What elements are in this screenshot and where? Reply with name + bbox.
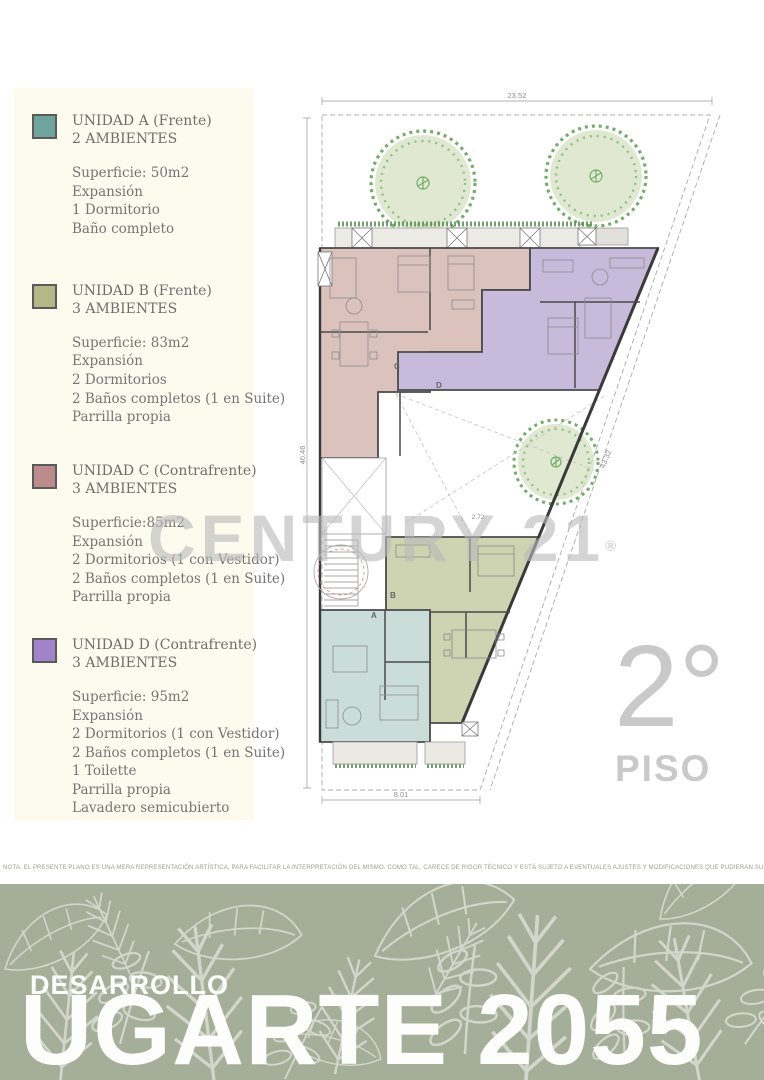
dim-right: 43.32 <box>598 449 613 470</box>
dim-left: 40.46 <box>298 446 307 465</box>
detail-line: 2 Dormitorios (1 con Vestidor) <box>72 726 285 744</box>
unit-a-color-swatch <box>32 114 57 139</box>
unit-b-color-swatch <box>32 284 57 309</box>
unit-c-subtitle: 3 AMBIENTES <box>72 480 285 498</box>
rear-balcony <box>333 742 465 766</box>
disclaimer-note-wrap: NOTA: EL PRESENTE PLANO ES UNA MERA REPR… <box>3 864 763 878</box>
unit-c-details: Superficie:85m2 Expansión 2 Dormitorios … <box>72 515 285 607</box>
unit-d-details: Superficie: 95m2 Expansión 2 Dormitorios… <box>72 689 285 818</box>
tree-icon <box>546 126 646 226</box>
legend-panel: UNIDAD A (Frente) 2 AMBIENTES Superficie… <box>14 88 254 820</box>
detail-line: 1 Dormitorio <box>72 202 212 220</box>
floorplan-sheet: UNIDAD A (Frente) 2 AMBIENTES Superficie… <box>0 0 764 1080</box>
unit-d-title: UNIDAD D (Contrafrente) <box>72 636 285 654</box>
unit-a-details: Superficie: 50m2 Expansión 1 Dormitorio … <box>72 165 212 238</box>
detail-line: Superficie: 83m2 <box>72 335 285 353</box>
detail-line: 2 Baños completos (1 en Suite) <box>72 745 285 763</box>
stair-core <box>314 458 386 606</box>
plan-label-c: C <box>394 362 400 371</box>
disclaimer-note: NOTA: EL PRESENTE PLANO ES UNA MERA REPR… <box>3 864 764 871</box>
detail-line: Parrilla propia <box>72 589 285 607</box>
brand-band: DESARROLLO UGARTE 2055 <box>0 884 764 1080</box>
detail-line: Superficie: 50m2 <box>72 165 212 183</box>
unit-a-area <box>320 610 430 742</box>
detail-line: 2 Baños completos (1 en Suite) <box>72 571 285 589</box>
brand-project-name: UGARTE 2055 <box>20 980 703 1080</box>
detail-line: 2 Baños completos (1 en Suite) <box>72 391 285 409</box>
detail-line: Superficie: 95m2 <box>72 689 285 707</box>
floor-number: 2° <box>614 628 725 744</box>
unit-c-color-swatch <box>32 464 57 489</box>
detail-line: Expansión <box>72 353 285 371</box>
unit-b-subtitle: 3 AMBIENTES <box>72 300 285 318</box>
detail-line: 2 Dormitorios <box>72 372 285 390</box>
detail-line: Parrilla propia <box>72 409 285 427</box>
plan-label-b: B <box>390 591 396 600</box>
plan-label-d: D <box>436 381 442 390</box>
legend-unit-d: UNIDAD D (Contrafrente) 3 AMBIENTES Supe… <box>32 636 248 819</box>
detail-line: Expansión <box>72 184 212 202</box>
unit-a-title: UNIDAD A (Frente) <box>72 112 212 130</box>
detail-line: Lavadero semicubierto <box>72 800 285 818</box>
unit-b-details: Superficie: 83m2 Expansión 2 Dormitorios… <box>72 335 285 427</box>
floor-word: PISO <box>615 748 711 790</box>
detail-line: 1 Toilette <box>72 763 285 781</box>
dim-bottom: 8.01 <box>394 790 409 799</box>
detail-line: Expansión <box>72 534 285 552</box>
detail-line: 2 Dormitorios (1 con Vestidor) <box>72 552 285 570</box>
front-balcony <box>335 224 628 248</box>
detail-line: Baño completo <box>72 221 212 239</box>
unit-b-title: UNIDAD B (Frente) <box>72 282 285 300</box>
detail-line: Superficie:85m2 <box>72 515 285 533</box>
dim-top: 23.52 <box>508 91 527 100</box>
detail-line: Expansión <box>72 708 285 726</box>
detail-line: Parrilla propia <box>72 782 285 800</box>
legend-unit-b: UNIDAD B (Frente) 3 AMBIENTES Superficie… <box>32 282 248 428</box>
unit-a-subtitle: 2 AMBIENTES <box>72 130 212 148</box>
legend-unit-c: UNIDAD C (Contrafrente) 3 AMBIENTES Supe… <box>32 462 248 608</box>
plan-label-a: A <box>371 611 377 620</box>
unit-d-color-swatch <box>32 638 57 663</box>
tree-icon <box>371 131 475 235</box>
legend-unit-a: UNIDAD A (Frente) 2 AMBIENTES Superficie… <box>32 112 248 240</box>
dim-inner: 2.72 <box>472 514 485 521</box>
unit-d-subtitle: 3 AMBIENTES <box>72 654 285 672</box>
unit-c-title: UNIDAD C (Contrafrente) <box>72 462 285 480</box>
